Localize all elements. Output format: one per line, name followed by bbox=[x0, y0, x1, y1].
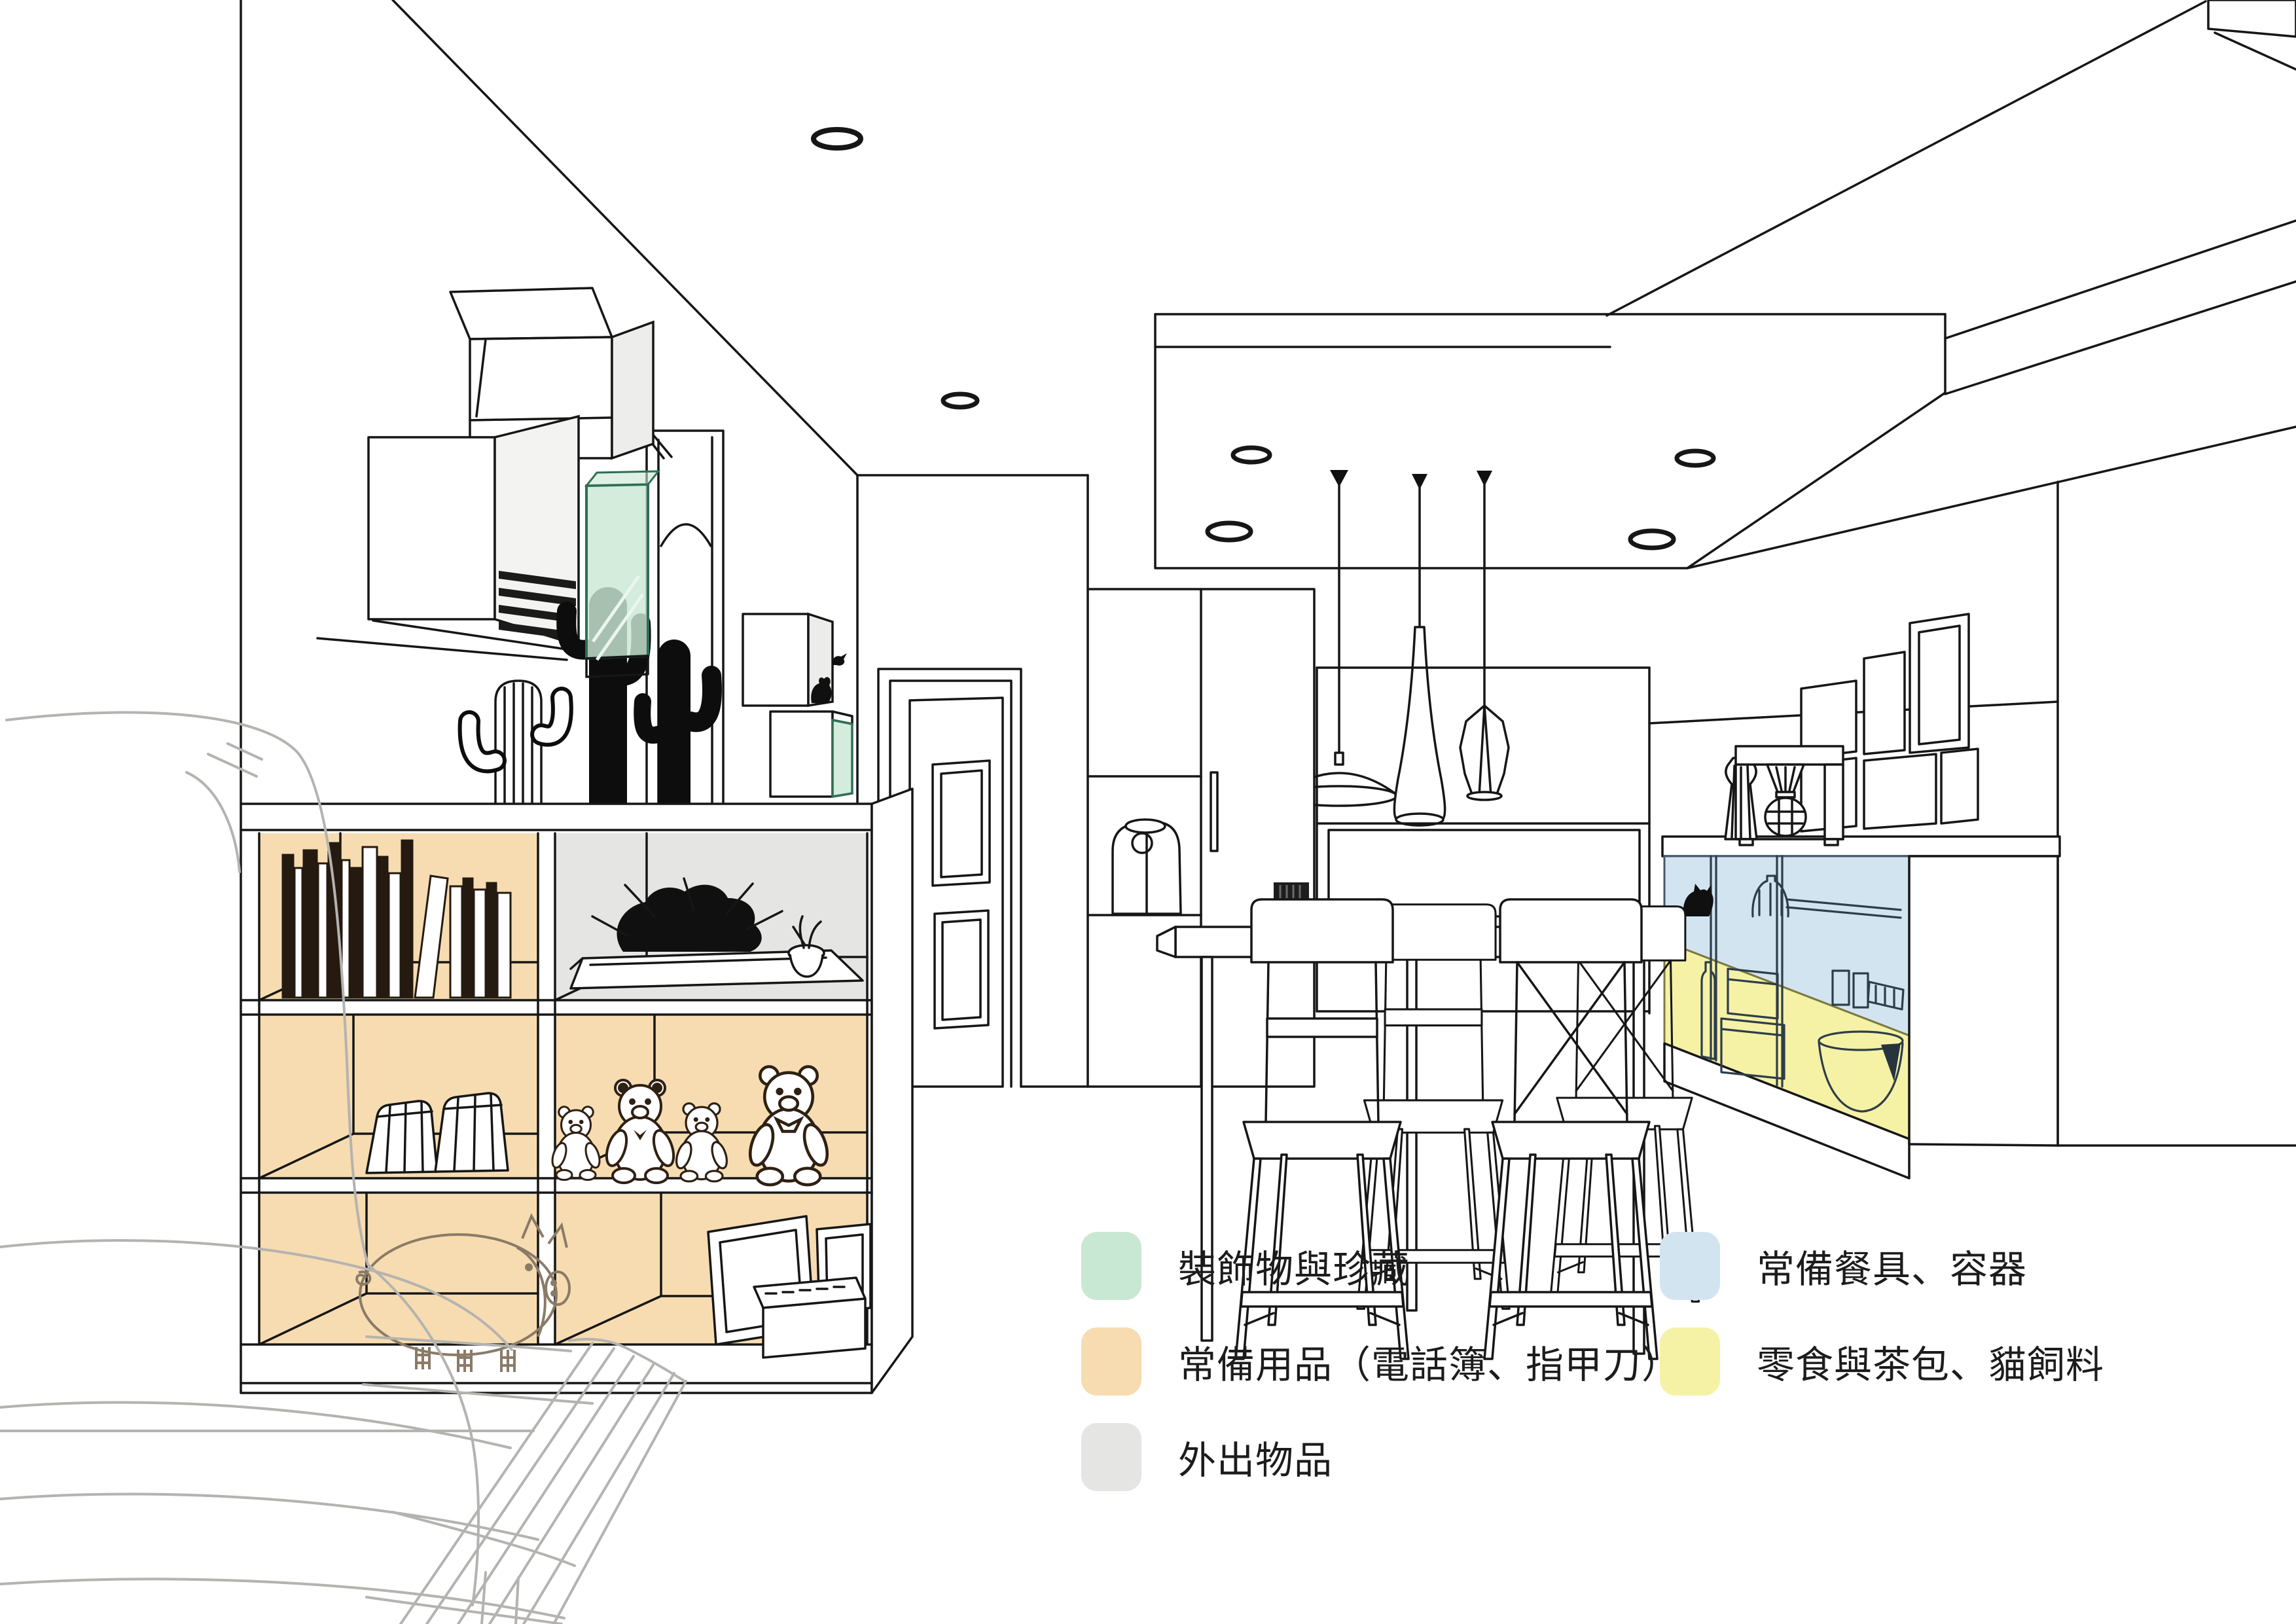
sideboard bbox=[1662, 746, 2060, 1178]
legend-label: 外出物品 bbox=[1178, 1430, 1333, 1485]
cactus-striped-icon bbox=[469, 681, 562, 806]
legend-label: 常備用品（電話簿、指甲刀） bbox=[1178, 1334, 1680, 1389]
legend-item-decor: 裝飾物與珍藏 bbox=[1081, 1232, 1680, 1300]
pendant-lamps bbox=[1282, 470, 1509, 825]
shelving-unit bbox=[241, 789, 912, 1393]
zone-decor-glass-top bbox=[586, 471, 658, 486]
kitchen-dropped-ceiling bbox=[1155, 1, 2206, 568]
recessed-light-icon bbox=[1677, 451, 1713, 465]
wall-cabinet-cluster bbox=[317, 288, 852, 812]
photo-frames-and-box bbox=[708, 1216, 870, 1358]
legend-swatch-blue bbox=[1660, 1232, 1720, 1300]
recessed-light-icon bbox=[1208, 523, 1251, 540]
ceiling-light-icon bbox=[814, 130, 861, 148]
legend-item-outing: 外出物品 bbox=[1081, 1423, 1680, 1491]
legend-label: 常備餐具、容器 bbox=[1757, 1238, 2027, 1293]
sideboard-counter-top bbox=[1662, 837, 2060, 856]
zone-decor-glass-side bbox=[833, 720, 852, 797]
legend-left-column: 裝飾物與珍藏 常備用品（電話簿、指甲刀） 外出物品 bbox=[1081, 1232, 1680, 1491]
zone-daily-items-cell bbox=[259, 1194, 538, 1344]
legend-swatch-yellow bbox=[1660, 1327, 1720, 1396]
ceiling-light-icon bbox=[943, 394, 977, 407]
recessed-light-icon bbox=[1233, 448, 1270, 462]
pendant-faceted-lamp-icon bbox=[1460, 706, 1509, 800]
legend-item-snacks: 零食與茶包、貓飼料 bbox=[1660, 1327, 2104, 1396]
legend-item-daily: 常備用品（電話簿、指甲刀） bbox=[1081, 1327, 1680, 1396]
interior-annotated-drawing: 裝飾物與珍藏 常備用品（電話簿、指甲刀） 外出物品 常備餐具、容器 零食與茶包、… bbox=[0, 0, 2296, 1624]
kettle-icon bbox=[1113, 820, 1181, 914]
legend-label: 裝飾物與珍藏 bbox=[1178, 1238, 1410, 1293]
legend-right-column: 常備餐具、容器 零食與茶包、貓飼料 bbox=[1660, 1232, 2104, 1396]
legend-swatch-green bbox=[1081, 1232, 1141, 1300]
legend-swatch-orange bbox=[1081, 1327, 1141, 1396]
recessed-light-icon bbox=[1630, 531, 1674, 548]
coffee-machine-icon bbox=[1725, 746, 1843, 845]
pendant-funnel-lamp-icon bbox=[1394, 627, 1444, 825]
legend-label: 零食與茶包、貓飼料 bbox=[1757, 1334, 2104, 1389]
legend-item-tableware: 常備餐具、容器 bbox=[1660, 1232, 2104, 1300]
legend-swatch-gray bbox=[1081, 1423, 1141, 1491]
bird-figurine-icon bbox=[833, 653, 847, 666]
